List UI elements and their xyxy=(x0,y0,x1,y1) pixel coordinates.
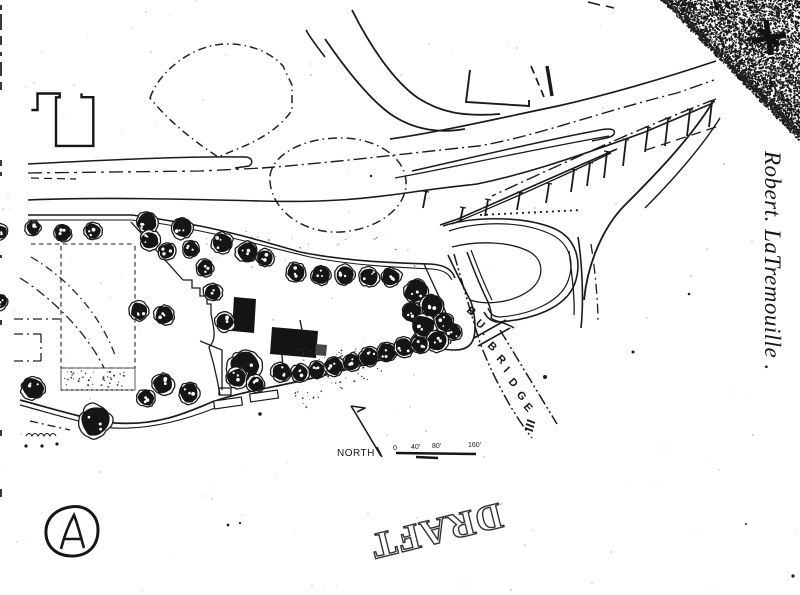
svg-text:0: 0 xyxy=(393,445,397,452)
svg-text:NORTH: NORTH xyxy=(337,448,375,459)
svg-text:Robert. LaTremouille .: Robert. LaTremouille . xyxy=(760,150,785,371)
svg-text:80': 80' xyxy=(432,443,441,450)
svg-text:160': 160' xyxy=(468,442,481,449)
svg-text:40': 40' xyxy=(411,444,420,451)
